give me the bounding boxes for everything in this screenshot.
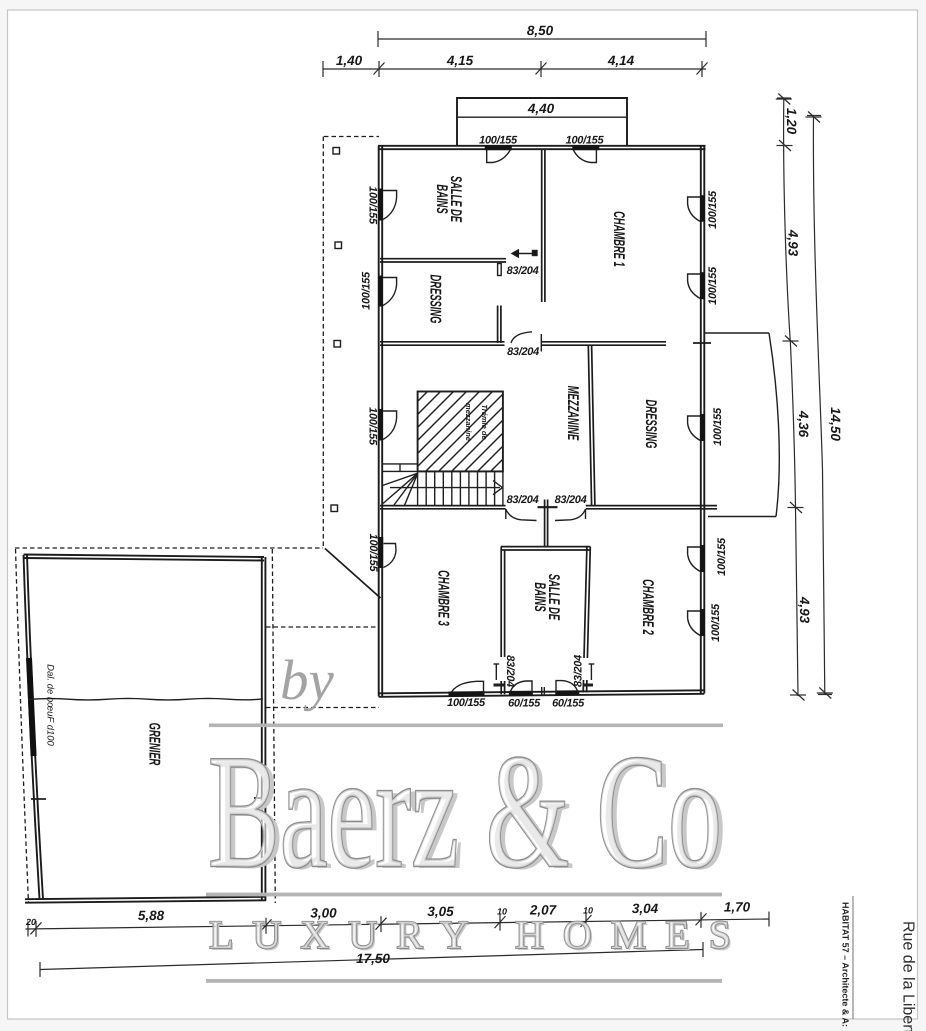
svg-text:4,15: 4,15 <box>446 53 474 68</box>
svg-text:Trémie de: Trémie de <box>480 404 489 439</box>
svg-text:DRESSING: DRESSING <box>426 275 444 324</box>
svg-text:100/155: 100/155 <box>710 603 722 642</box>
svg-text:CHAMBRE 1: CHAMBRE 1 <box>610 211 628 267</box>
svg-text:by: by <box>280 649 335 712</box>
svg-text:83/204: 83/204 <box>504 655 516 687</box>
svg-text:4,40: 4,40 <box>527 101 555 116</box>
svg-text:Baerz & Co: Baerz & Co <box>208 722 722 902</box>
svg-text:MEZZANINE: MEZZANINE <box>564 386 582 441</box>
svg-text:100/155: 100/155 <box>566 135 605 147</box>
svg-text:LUXURY HOMES: LUXURY HOMES <box>209 912 750 957</box>
svg-text:DRESSING: DRESSING <box>642 400 660 449</box>
svg-text:100/155: 100/155 <box>479 135 518 147</box>
svg-text:83/204: 83/204 <box>573 655 585 687</box>
svg-text:83/204: 83/204 <box>507 494 539 506</box>
svg-text:100/155: 100/155 <box>361 271 373 310</box>
svg-text:100/155: 100/155 <box>707 190 719 229</box>
svg-text:4,93: 4,93 <box>786 229 801 257</box>
svg-text:100/155: 100/155 <box>716 537 728 576</box>
svg-text:BAINS: BAINS <box>531 582 549 611</box>
svg-text:83/204: 83/204 <box>507 346 539 358</box>
svg-text:GRENIER: GRENIER <box>145 723 163 766</box>
svg-text:Dal. de bœuF d100: Dal. de bœuF d100 <box>45 664 56 746</box>
svg-text:CHAMBRE 3: CHAMBRE 3 <box>434 570 452 626</box>
svg-text:20: 20 <box>25 917 36 927</box>
svg-text:4,93: 4,93 <box>797 596 812 624</box>
svg-text:5,88: 5,88 <box>138 908 165 923</box>
svg-text:4,14: 4,14 <box>607 53 635 68</box>
svg-text:mezzanine: mezzanine <box>464 403 473 441</box>
svg-text:60/155: 60/155 <box>552 698 585 710</box>
svg-text:100/155: 100/155 <box>367 186 379 225</box>
svg-text:83/204: 83/204 <box>507 265 539 277</box>
svg-text:4,36: 4,36 <box>796 410 811 438</box>
svg-text:83/204: 83/204 <box>555 494 587 506</box>
svg-text:14,50: 14,50 <box>828 407 843 441</box>
svg-text:60/155: 60/155 <box>508 698 541 710</box>
svg-text:1,20: 1,20 <box>784 108 799 135</box>
svg-text:100/155: 100/155 <box>367 407 379 446</box>
svg-text:100/155: 100/155 <box>707 266 719 305</box>
svg-text:100/155: 100/155 <box>367 534 379 573</box>
svg-text:HABITAT 57 – Architecte & A:: HABITAT 57 – Architecte & A: <box>841 902 851 1027</box>
svg-text:100/155: 100/155 <box>447 697 486 709</box>
svg-text:8,50: 8,50 <box>527 23 554 38</box>
svg-text:BAINS: BAINS <box>433 184 451 213</box>
svg-text:1,40: 1,40 <box>336 53 363 68</box>
svg-text:CHAMBRE 2: CHAMBRE 2 <box>639 579 657 635</box>
svg-text:Rue de la Libert: Rue de la Libert <box>900 921 917 1031</box>
svg-text:100/155: 100/155 <box>712 407 724 446</box>
